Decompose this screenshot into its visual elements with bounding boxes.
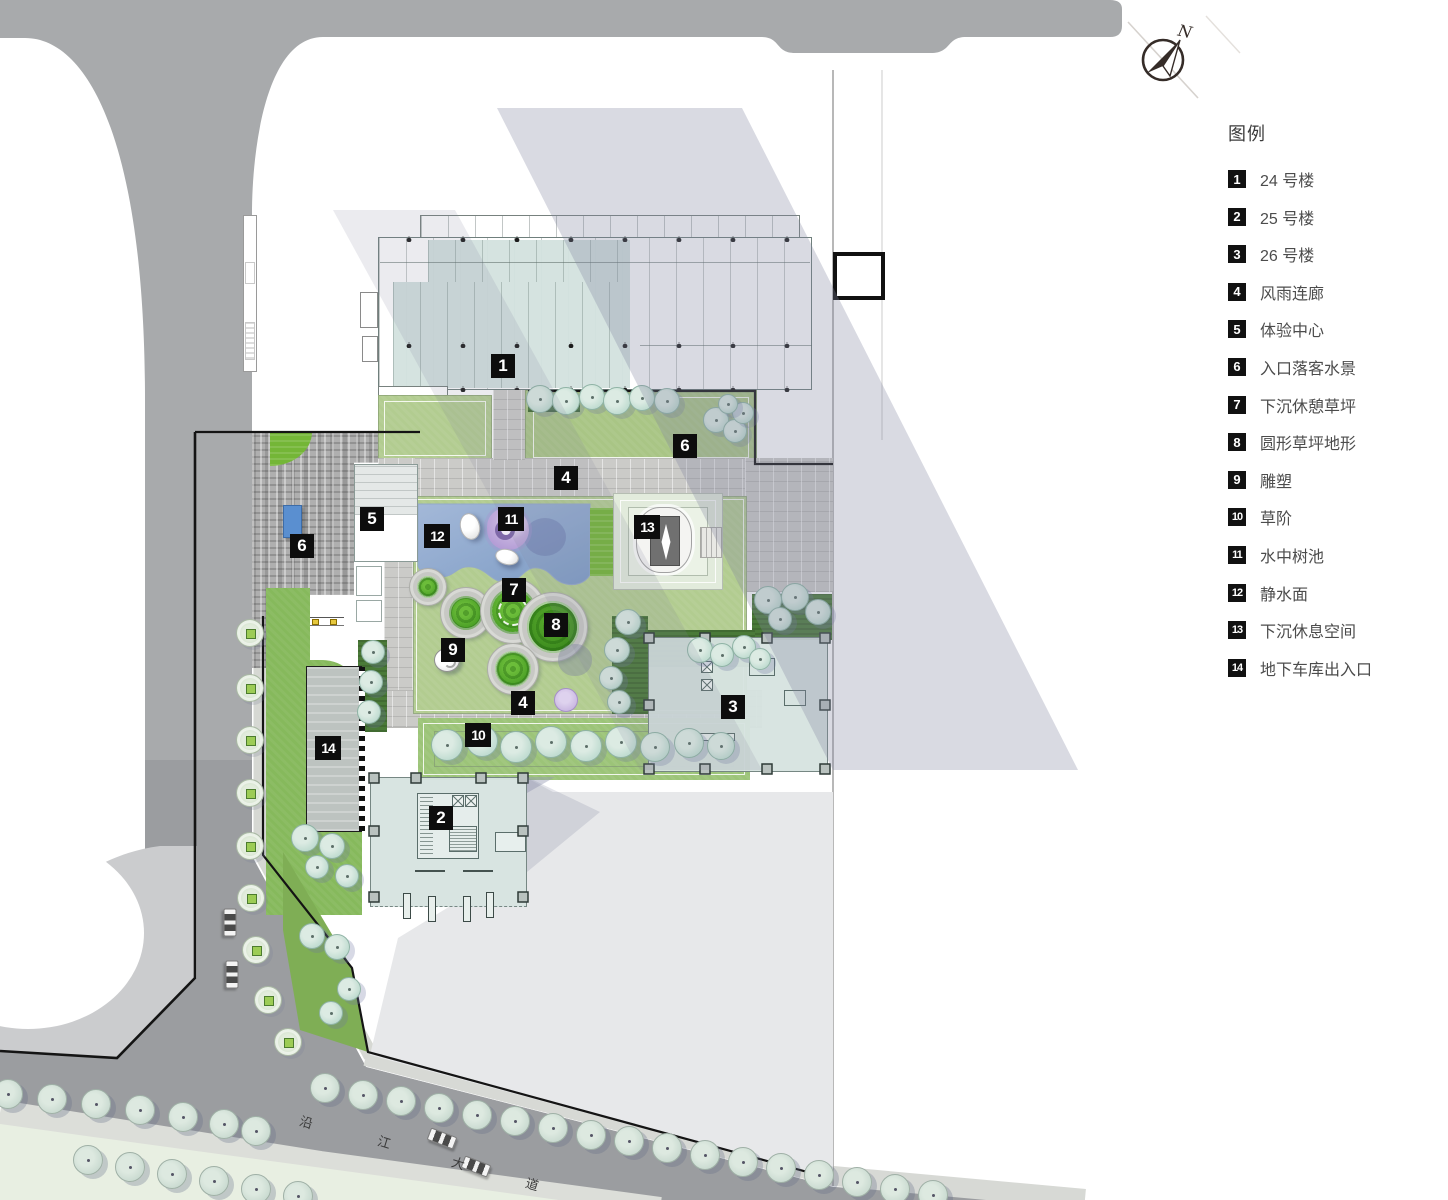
building-24 — [360, 214, 812, 394]
road-tree-icon — [500, 1106, 530, 1136]
legend-label: 24 号楼 — [1260, 167, 1314, 191]
tree-icon — [718, 394, 738, 414]
road-tree-icon — [652, 1133, 682, 1163]
road-tree-icon — [424, 1093, 454, 1123]
compass-n-label: N — [1176, 21, 1194, 42]
legend-label: 圆形草坪地形 — [1260, 430, 1356, 454]
legend-item: 124 号楼 — [1228, 170, 1372, 188]
legend-label: 26 号楼 — [1260, 242, 1314, 266]
legend-item: 13下沉休息空间 — [1228, 621, 1372, 639]
tree-icon — [324, 934, 350, 960]
tree-icon — [291, 824, 319, 852]
road-tree-icon — [804, 1160, 834, 1190]
tree-icon — [615, 609, 641, 635]
road-tree-icon — [241, 1174, 271, 1200]
tree-icon — [687, 637, 713, 663]
legend-number-chip: 4 — [1228, 283, 1246, 301]
tree-icon — [579, 384, 605, 410]
legend-label: 下沉休息空间 — [1260, 618, 1356, 642]
bench — [310, 617, 344, 626]
street-tree-icon — [236, 674, 264, 702]
tree-icon — [629, 385, 655, 411]
legend-title: 图例 — [1228, 120, 1372, 146]
tree-icon — [361, 640, 385, 664]
road-tree-icon — [918, 1180, 948, 1200]
road-lower — [0, 760, 1064, 1200]
plan-marker-11: 11 — [498, 507, 524, 531]
experience-center-annex2 — [356, 600, 382, 622]
road-name-char: 道 — [524, 1173, 542, 1195]
plan-marker-12: 12 — [424, 524, 450, 548]
tree-icon — [710, 643, 734, 667]
legend-number-chip: 9 — [1228, 471, 1246, 489]
plan-marker-13: 13 — [634, 515, 660, 539]
tree-icon — [607, 690, 631, 714]
plan-marker-7: 7 — [502, 578, 526, 602]
legend-item: 8圆形草坪地形 — [1228, 433, 1372, 451]
tree-icon — [305, 855, 329, 879]
tree-icon — [335, 864, 359, 888]
road-name-char: 江 — [376, 1131, 394, 1153]
sunken-steps — [700, 527, 722, 558]
tree-icon — [749, 648, 771, 670]
plan-marker-8: 8 — [544, 613, 568, 637]
legend-item: 11水中树池 — [1228, 546, 1372, 564]
tree-icon — [299, 923, 325, 949]
legend-number-chip: 5 — [1228, 320, 1246, 338]
tree-icon — [599, 666, 623, 690]
legend-label: 草阶 — [1260, 505, 1292, 529]
tree-icon — [674, 728, 704, 758]
road-tree-icon — [690, 1140, 720, 1170]
legend-item: 12静水面 — [1228, 584, 1372, 602]
legend-label: 雕塑 — [1260, 468, 1292, 492]
legend-item: 5体验中心 — [1228, 320, 1372, 338]
legend-label: 风雨连廊 — [1260, 280, 1324, 304]
strip-building — [243, 215, 257, 372]
legend-item: 10草阶 — [1228, 508, 1372, 526]
plan-marker-3: 3 — [721, 695, 745, 719]
legend-number-chip: 11 — [1228, 546, 1246, 564]
road-name-char: 沿 — [298, 1111, 316, 1133]
purple-tree-small — [554, 688, 578, 712]
car-icon — [427, 1127, 458, 1149]
road-tree-icon — [115, 1152, 145, 1182]
legend-number-chip: 1 — [1228, 170, 1246, 188]
tree-icon — [768, 607, 792, 631]
road-tree-icon — [576, 1120, 606, 1150]
street-tree-icon — [254, 986, 282, 1014]
legend-item: 225 号楼 — [1228, 208, 1372, 226]
road-tree-icon — [310, 1073, 340, 1103]
legend-number-chip: 14 — [1228, 659, 1246, 677]
tree-icon — [535, 726, 567, 758]
tree-icon — [500, 731, 532, 763]
legend-number-chip: 8 — [1228, 433, 1246, 451]
tree-icon — [805, 599, 831, 625]
legend: 图例 124 号楼225 号楼326 号楼4风雨连廊5体验中心6入口落客水景7下… — [1228, 120, 1372, 696]
street-tree-icon — [236, 619, 264, 647]
plan-marker-6: 6 — [290, 534, 314, 558]
experience-center-annex — [356, 566, 382, 596]
legend-item: 326 号楼 — [1228, 245, 1372, 263]
plan-marker-2: 2 — [429, 806, 453, 830]
street-tree-icon — [236, 832, 264, 860]
walkway-right — [745, 458, 833, 592]
tree-icon — [526, 385, 554, 413]
legend-label: 25 号楼 — [1260, 205, 1314, 229]
road-tree-icon — [0, 1079, 23, 1109]
street-tree-icon — [237, 884, 265, 912]
legend-label: 地下车库出入口 — [1260, 656, 1372, 680]
street-tree-icon — [242, 936, 270, 964]
water-tree-shadow — [524, 518, 566, 556]
street-tree-icon — [274, 1028, 302, 1056]
plan-marker-4: 4 — [554, 466, 578, 490]
legend-number-chip: 3 — [1228, 245, 1246, 263]
road-tree-icon — [614, 1126, 644, 1156]
legend-label: 入口落客水景 — [1260, 355, 1356, 379]
tree-icon — [570, 730, 602, 762]
gray-tree — [558, 644, 592, 676]
plan-marker-4: 4 — [511, 691, 535, 715]
legend-number-chip: 13 — [1228, 621, 1246, 639]
adjacent-unit-outline — [833, 252, 885, 300]
road-tree-icon — [462, 1100, 492, 1130]
west-lawn-strip — [266, 588, 310, 915]
corner-parcel — [0, 846, 197, 1058]
car-icon — [224, 909, 237, 937]
road-tree-icon — [81, 1089, 111, 1119]
car-icon — [226, 961, 239, 989]
site-plan-canvas: 沿江大道 123445667891011121314 N 图例 124 号楼22… — [0, 0, 1448, 1200]
road-tree-icon — [37, 1084, 67, 1114]
tree-icon — [552, 387, 580, 415]
road-tree-icon — [538, 1113, 568, 1143]
road-tree-icon — [209, 1109, 239, 1139]
street-tree-icon — [236, 726, 264, 754]
legend-number-chip: 10 — [1228, 508, 1246, 526]
tree-icon — [319, 1001, 343, 1025]
legend-number-chip: 6 — [1228, 358, 1246, 376]
tree-icon — [359, 670, 383, 694]
plan-marker-9: 9 — [441, 638, 465, 662]
road-tree-icon — [842, 1167, 872, 1197]
road-tree-icon — [73, 1145, 103, 1175]
road-tree-icon — [168, 1102, 198, 1132]
tree-icon — [603, 387, 631, 415]
road-tree-icon — [157, 1159, 187, 1189]
tree-icon — [707, 732, 735, 760]
road-name-char: 大 — [450, 1152, 468, 1174]
road-tree-icon — [348, 1080, 378, 1110]
road-tree-icon — [125, 1095, 155, 1125]
walkway-north-connector — [493, 390, 525, 460]
legend-label: 下沉休憩草坪 — [1260, 393, 1356, 417]
tree-icon — [605, 726, 637, 758]
legend-item: 6入口落客水景 — [1228, 358, 1372, 376]
tree-icon — [604, 637, 630, 663]
legend-item: 14地下车库出入口 — [1228, 659, 1372, 677]
building-25 — [370, 777, 527, 907]
road-tree-icon — [283, 1181, 313, 1200]
legend-label: 体验中心 — [1260, 317, 1324, 341]
road-tree-icon — [880, 1174, 910, 1200]
road-tree-icon — [241, 1116, 271, 1146]
road-tree-icon — [728, 1147, 758, 1177]
legend-item: 4风雨连廊 — [1228, 283, 1372, 301]
road-tree-icon — [386, 1086, 416, 1116]
plan-marker-1: 1 — [491, 354, 515, 378]
plan-marker-6: 6 — [673, 434, 697, 458]
legend-item: 7下沉休憩草坪 — [1228, 396, 1372, 414]
plan-marker-5: 5 — [360, 507, 384, 531]
building-25-shadow — [527, 777, 555, 793]
tree-icon — [337, 977, 361, 1001]
tree-icon — [654, 388, 680, 414]
legend-number-chip: 2 — [1228, 208, 1246, 226]
legend-item: 9雕塑 — [1228, 471, 1372, 489]
legend-label: 水中树池 — [1260, 543, 1324, 567]
legend-number-chip: 12 — [1228, 584, 1246, 602]
road-tree-icon — [199, 1166, 229, 1196]
tree-icon — [357, 700, 381, 724]
north-lawn-left — [378, 395, 492, 462]
street-tree-icon — [236, 779, 264, 807]
plan-marker-10: 10 — [465, 723, 491, 747]
plan-marker-14: 14 — [315, 736, 341, 760]
tree-icon — [640, 732, 670, 762]
legend-number-chip: 7 — [1228, 396, 1246, 414]
legend-label: 静水面 — [1260, 581, 1308, 605]
road-tree-icon — [766, 1153, 796, 1183]
tree-icon — [431, 729, 463, 761]
tree-icon — [319, 833, 345, 859]
